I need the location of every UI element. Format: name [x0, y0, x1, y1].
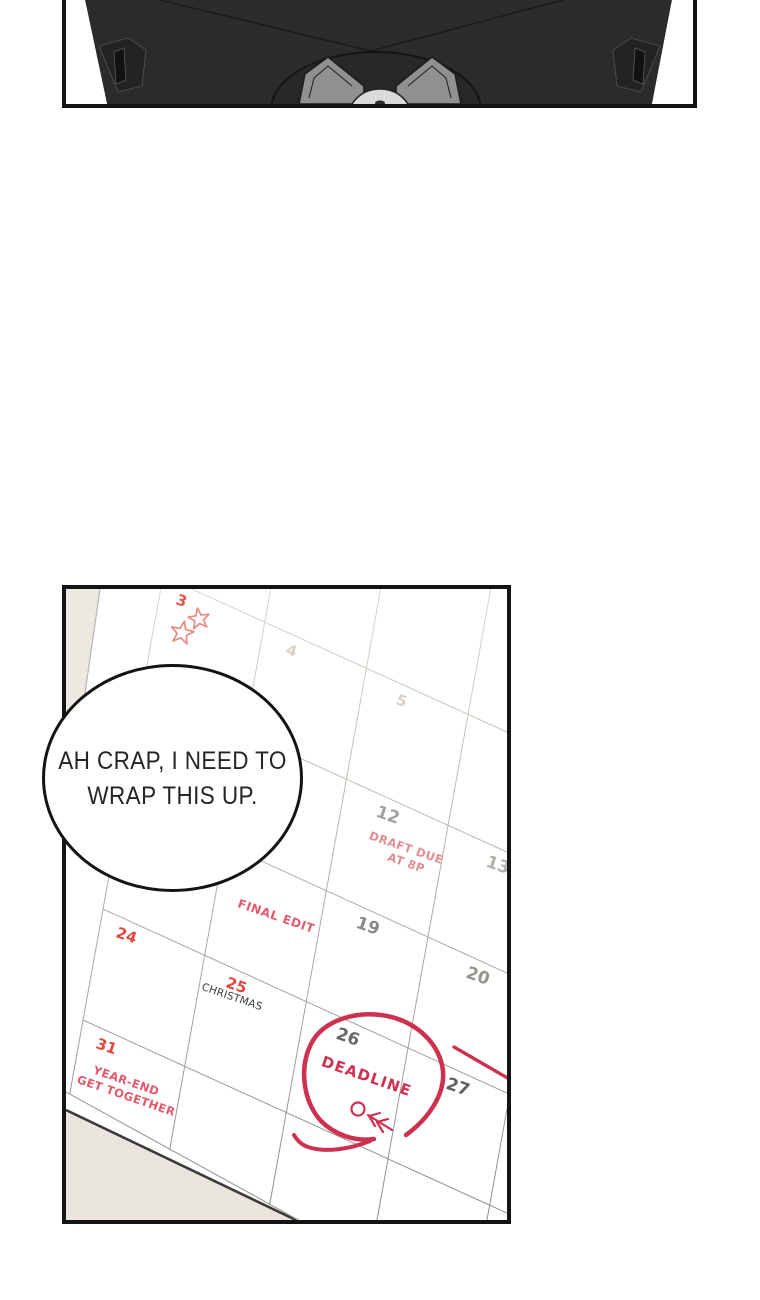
- machine-illustration: [66, 0, 693, 104]
- machine-latch-left-slot: [114, 48, 126, 84]
- panel-machine: [62, 0, 697, 108]
- speech-bubble-text: AH CRAP, I NEED TO WRAP THIS UP.: [58, 743, 287, 813]
- comic-page: 345121319202425262731 DRAFT DUEAT 8PFINA…: [0, 0, 760, 1300]
- speech-bubble: AH CRAP, I NEED TO WRAP THIS UP.: [42, 664, 303, 892]
- speech-line-2: WRAP THIS UP.: [87, 781, 257, 809]
- machine-latch-right-slot: [633, 48, 645, 84]
- speech-line-1: AH CRAP, I NEED TO: [58, 747, 287, 775]
